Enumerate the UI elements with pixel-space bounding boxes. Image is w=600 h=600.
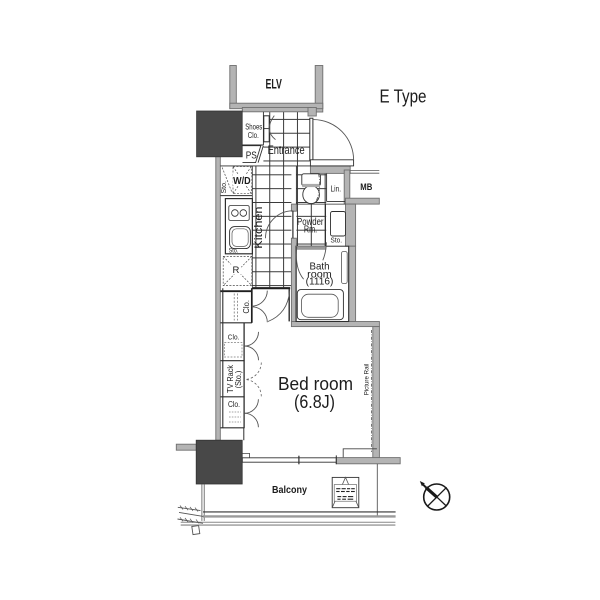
svg-text:Bed room: Bed room [278, 374, 353, 394]
svg-text:PS: PS [246, 151, 257, 162]
svg-text:(Sto.): (Sto.) [234, 370, 243, 388]
svg-text:ELV: ELV [265, 76, 282, 91]
svg-text:Kitchen: Kitchen [253, 207, 265, 249]
svg-text:R: R [232, 265, 239, 276]
svg-text:Entrance: Entrance [268, 143, 305, 157]
svg-text:Balcony: Balcony [272, 484, 307, 496]
svg-text:(6.8J): (6.8J) [294, 392, 335, 412]
svg-text:W/D: W/D [233, 176, 251, 187]
svg-text:Sto.: Sto. [331, 235, 343, 244]
svg-text:Rm.: Rm. [304, 225, 317, 236]
svg-text:Lin.: Lin. [331, 183, 342, 193]
svg-text:E Type: E Type [380, 86, 427, 106]
svg-text:Clo.: Clo. [228, 400, 240, 409]
svg-text:Clo.: Clo. [228, 333, 240, 342]
svg-text:(1116): (1116) [306, 276, 334, 287]
svg-text:Picture Rail: Picture Rail [364, 364, 370, 396]
svg-text:Sto.: Sto. [219, 181, 228, 194]
svg-text:Clo.: Clo. [241, 300, 251, 314]
svg-text:Sto.: Sto. [229, 247, 239, 254]
svg-text:MB: MB [360, 182, 372, 193]
svg-text:Clo.: Clo. [248, 130, 259, 140]
